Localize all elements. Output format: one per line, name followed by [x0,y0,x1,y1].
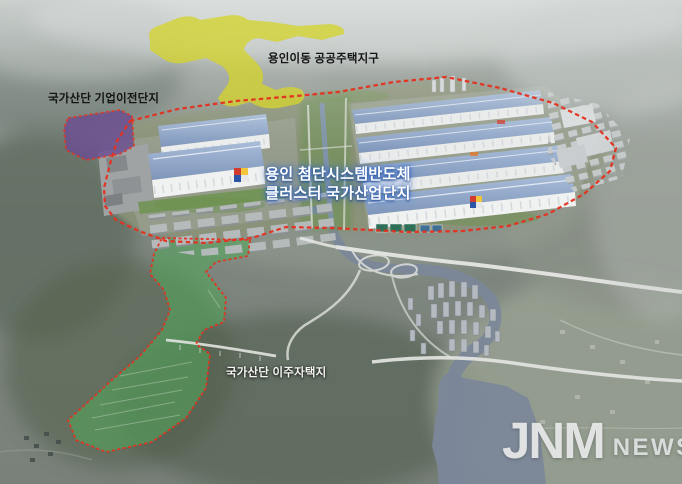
relocation-site-label: 국가산단 기업이전단지 [48,90,159,106]
fab-logo [234,168,248,182]
cluster-title-label: 용인 첨단시스템반도체 클러스터 국가산업단지 [262,165,414,203]
cluster-title-line2: 클러스터 국가산업단지 [262,184,414,203]
cluster-title-line1: 용인 첨단시스템반도체 [262,165,414,184]
resettlement-site-label: 국가산단 이주자택지 [226,364,326,380]
watermark-suffix: NEWS [613,434,682,464]
watermark-brand: JNM [502,419,604,464]
housing-district-label: 용인이동 공공주택지구 [268,50,379,66]
news-watermark: JNM NEWS [502,419,682,464]
fab-logo [470,196,482,208]
aerial-rendering-photo: 용인이동 공공주택지구 국가산단 기업이전단지 용인 첨단시스템반도체 클러스터… [0,0,682,484]
